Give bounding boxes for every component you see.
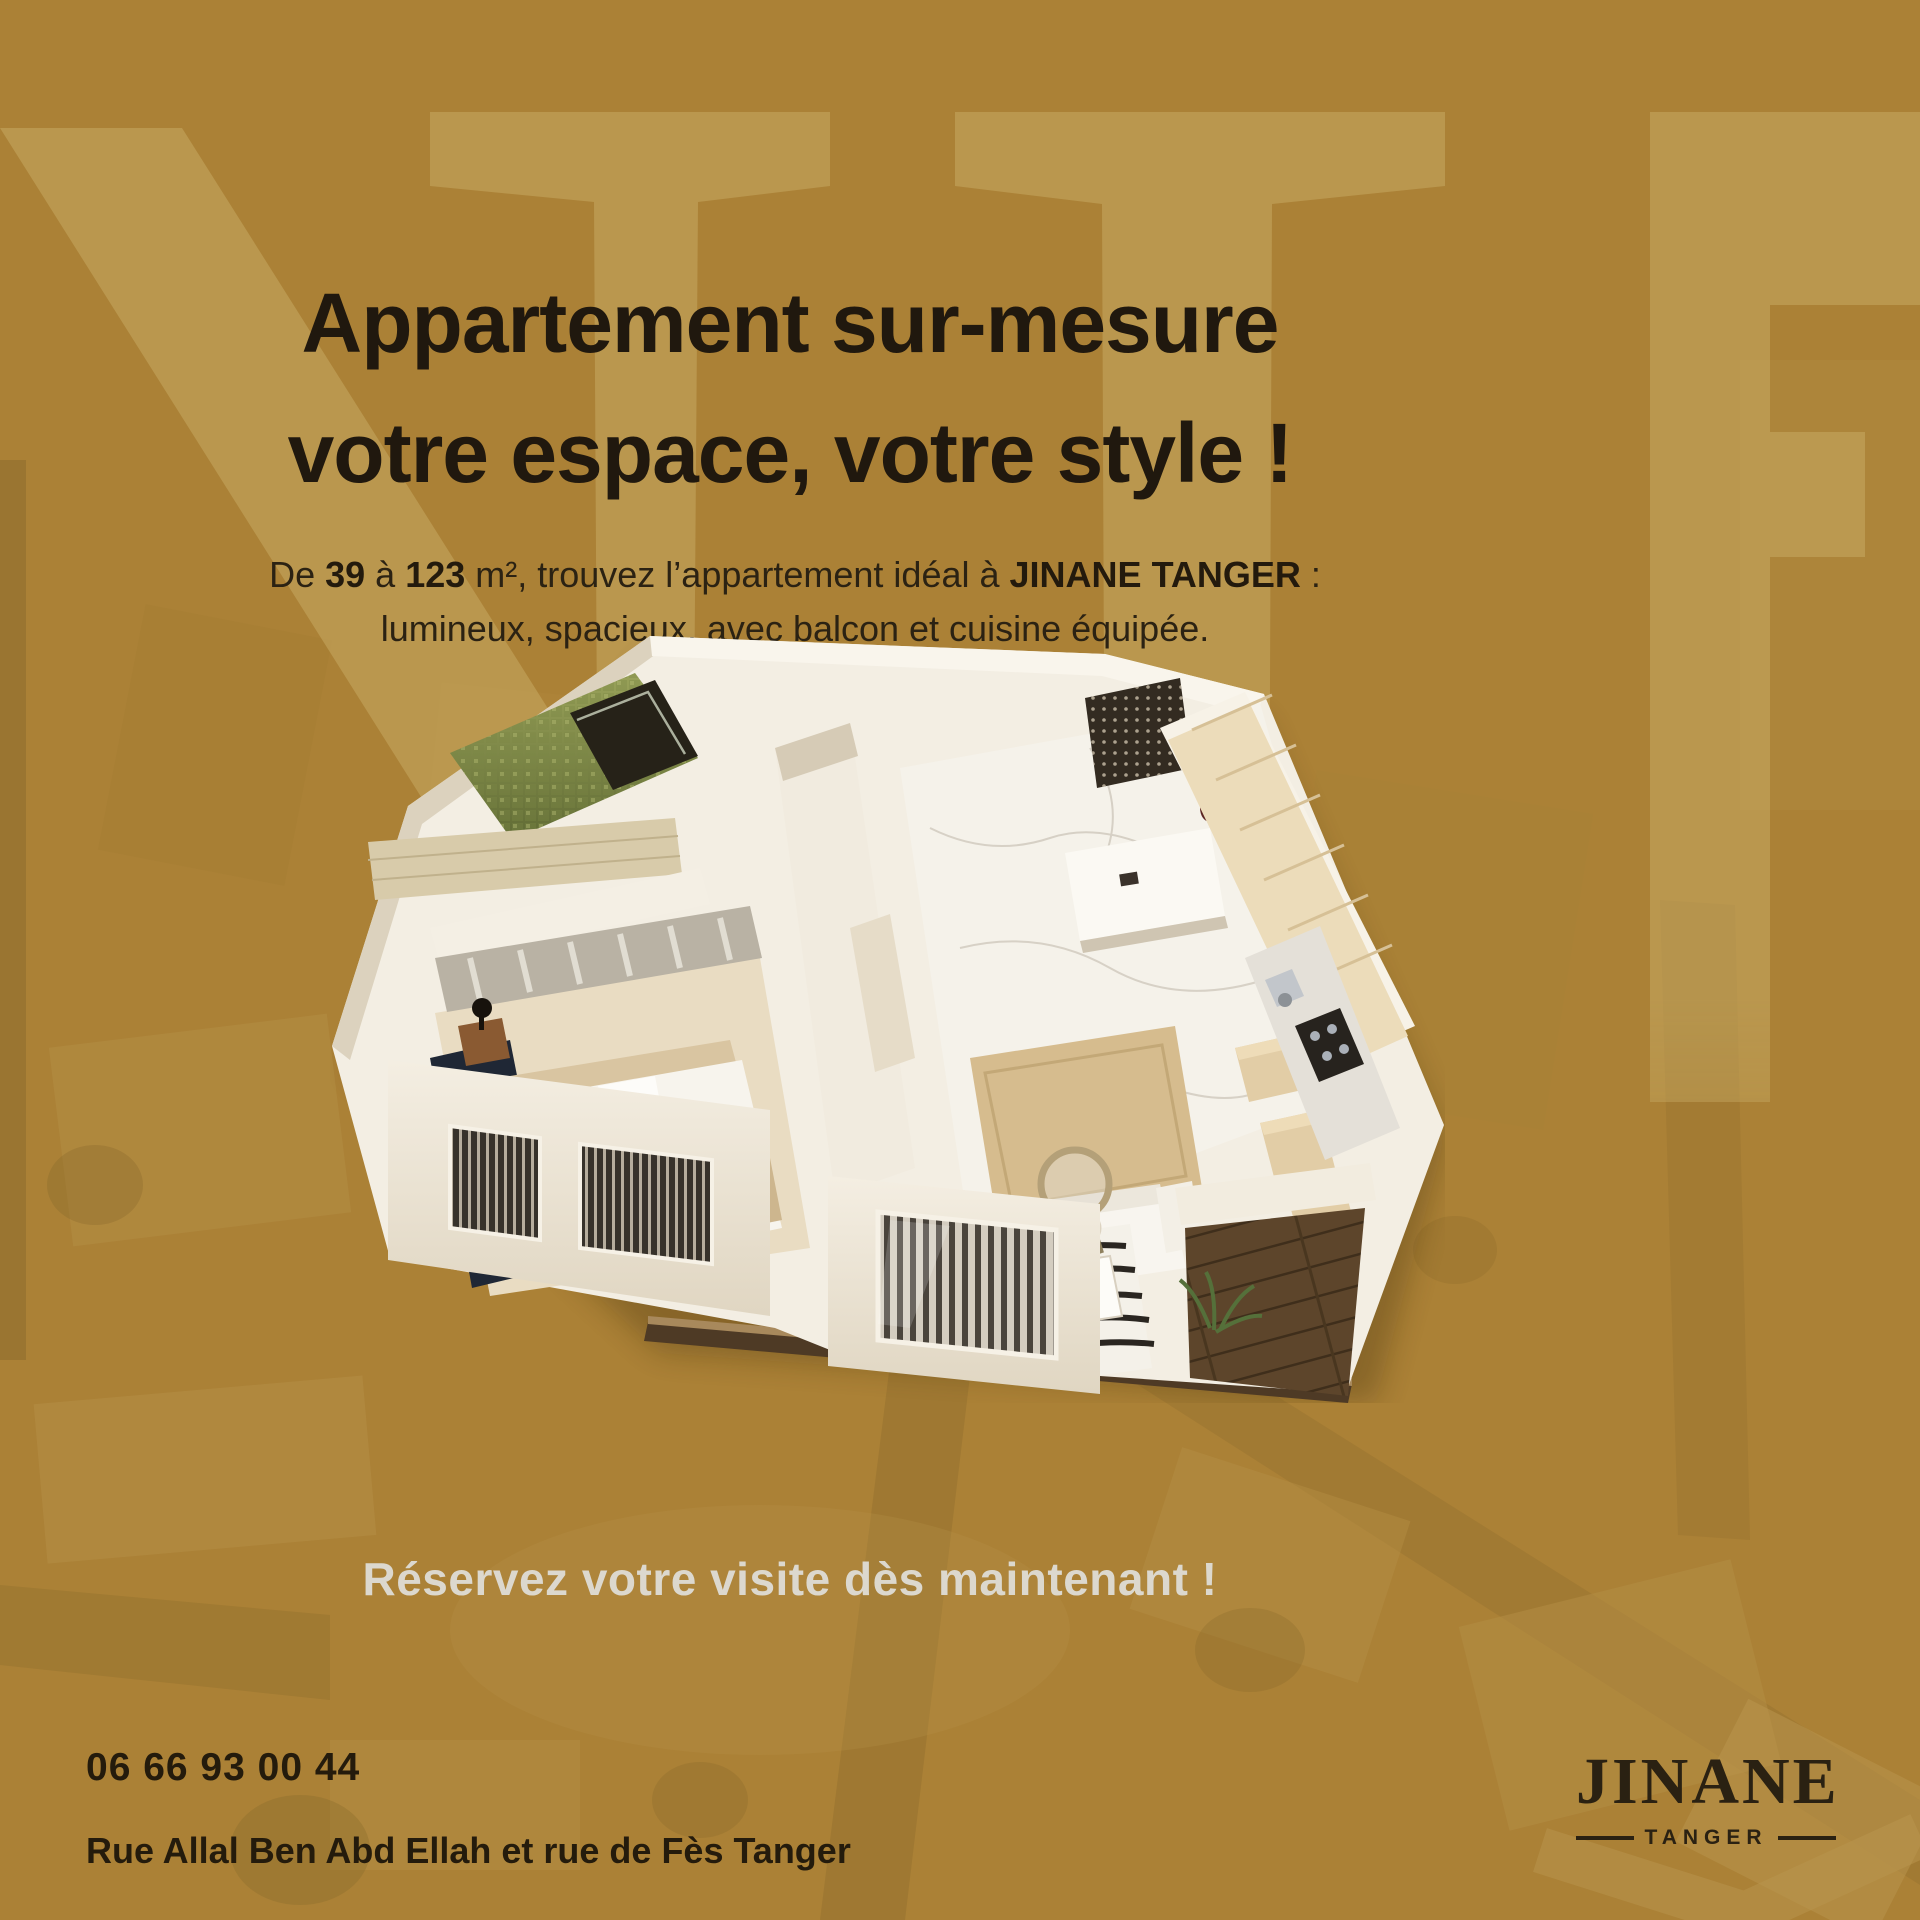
headline-line1: Appartement sur-mesure [0, 258, 1580, 388]
intro-brand: JINANE TANGER [1010, 554, 1301, 595]
floor-plan-image [330, 628, 1445, 1403]
intro-max-size: 123 [405, 554, 465, 595]
intro-mid2: m², trouvez l’appartement idéal à [465, 554, 1009, 595]
logo-rule-left [1576, 1836, 1634, 1840]
phone-number: 06 66 93 00 44 [86, 1746, 851, 1790]
brand-logo: JINANE TANGER [1576, 1744, 1836, 1850]
logo-city-row: TANGER [1576, 1826, 1836, 1850]
address: Rue Allal Ben Abd Ellah et rue de Fès Ta… [86, 1830, 851, 1872]
headline: Appartement sur-mesure votre espace, vot… [0, 258, 1580, 518]
logo-name: JINANE [1576, 1744, 1836, 1820]
intro-suffix: : [1301, 554, 1321, 595]
headline-line2: votre espace, votre style ! [0, 388, 1580, 518]
intro-prefix: De [269, 554, 325, 595]
poster: Appartement sur-mesure votre espace, vot… [0, 0, 1920, 1920]
intro-min-size: 39 [325, 554, 365, 595]
cta-text: Réservez votre visite dès maintenant ! [0, 1552, 1580, 1606]
logo-city: TANGER [1644, 1826, 1767, 1850]
watermark-glyph-3 [1650, 112, 1920, 1102]
logo-rule-right [1778, 1836, 1836, 1840]
intro-mid1: à [365, 554, 405, 595]
contact-block: 06 66 93 00 44 Rue Allal Ben Abd Ellah e… [86, 1746, 851, 1872]
